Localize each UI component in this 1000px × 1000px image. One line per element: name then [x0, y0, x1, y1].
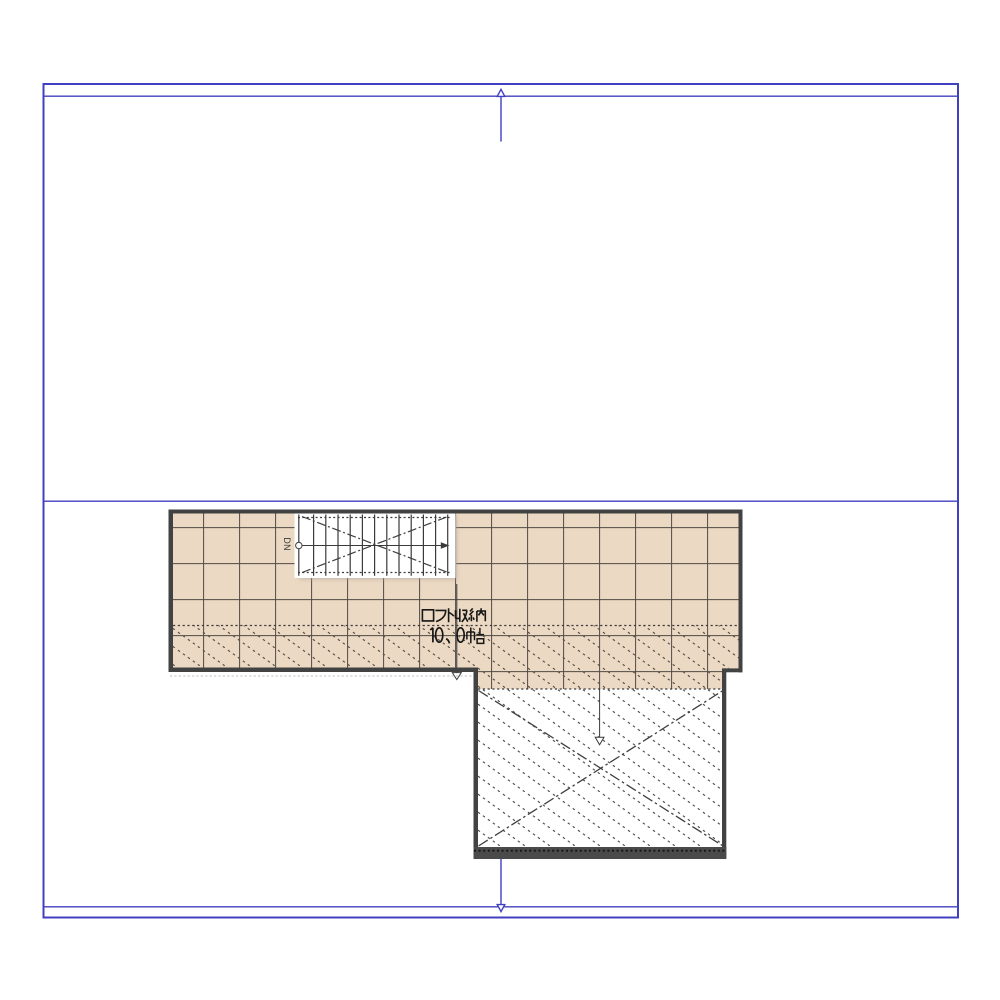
svg-text:DN: DN [282, 537, 292, 551]
